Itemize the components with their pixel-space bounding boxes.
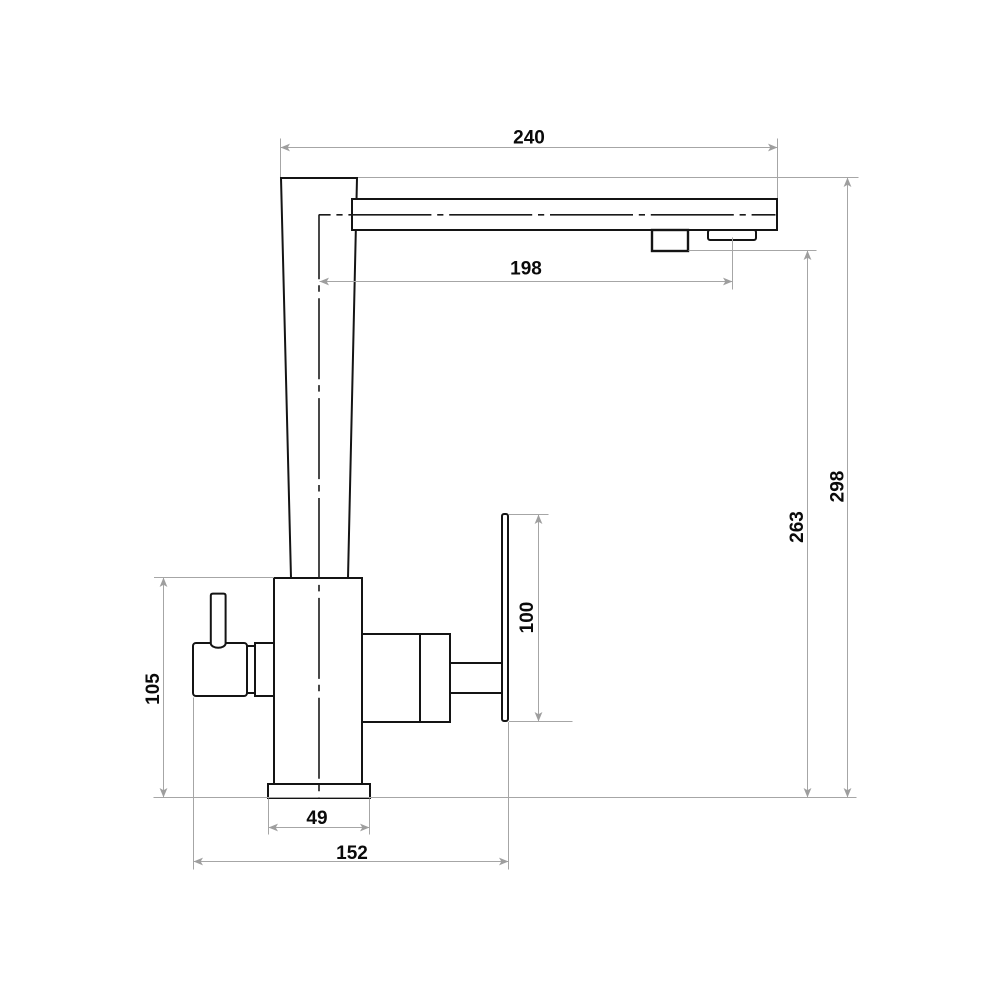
svg-text:263: 263: [787, 511, 808, 543]
svg-text:105: 105: [143, 673, 164, 705]
svg-text:100: 100: [517, 602, 538, 634]
svg-text:298: 298: [827, 471, 848, 503]
svg-text:240: 240: [513, 127, 545, 148]
svg-text:49: 49: [306, 808, 327, 829]
svg-text:152: 152: [336, 843, 368, 864]
svg-text:198: 198: [510, 259, 542, 280]
